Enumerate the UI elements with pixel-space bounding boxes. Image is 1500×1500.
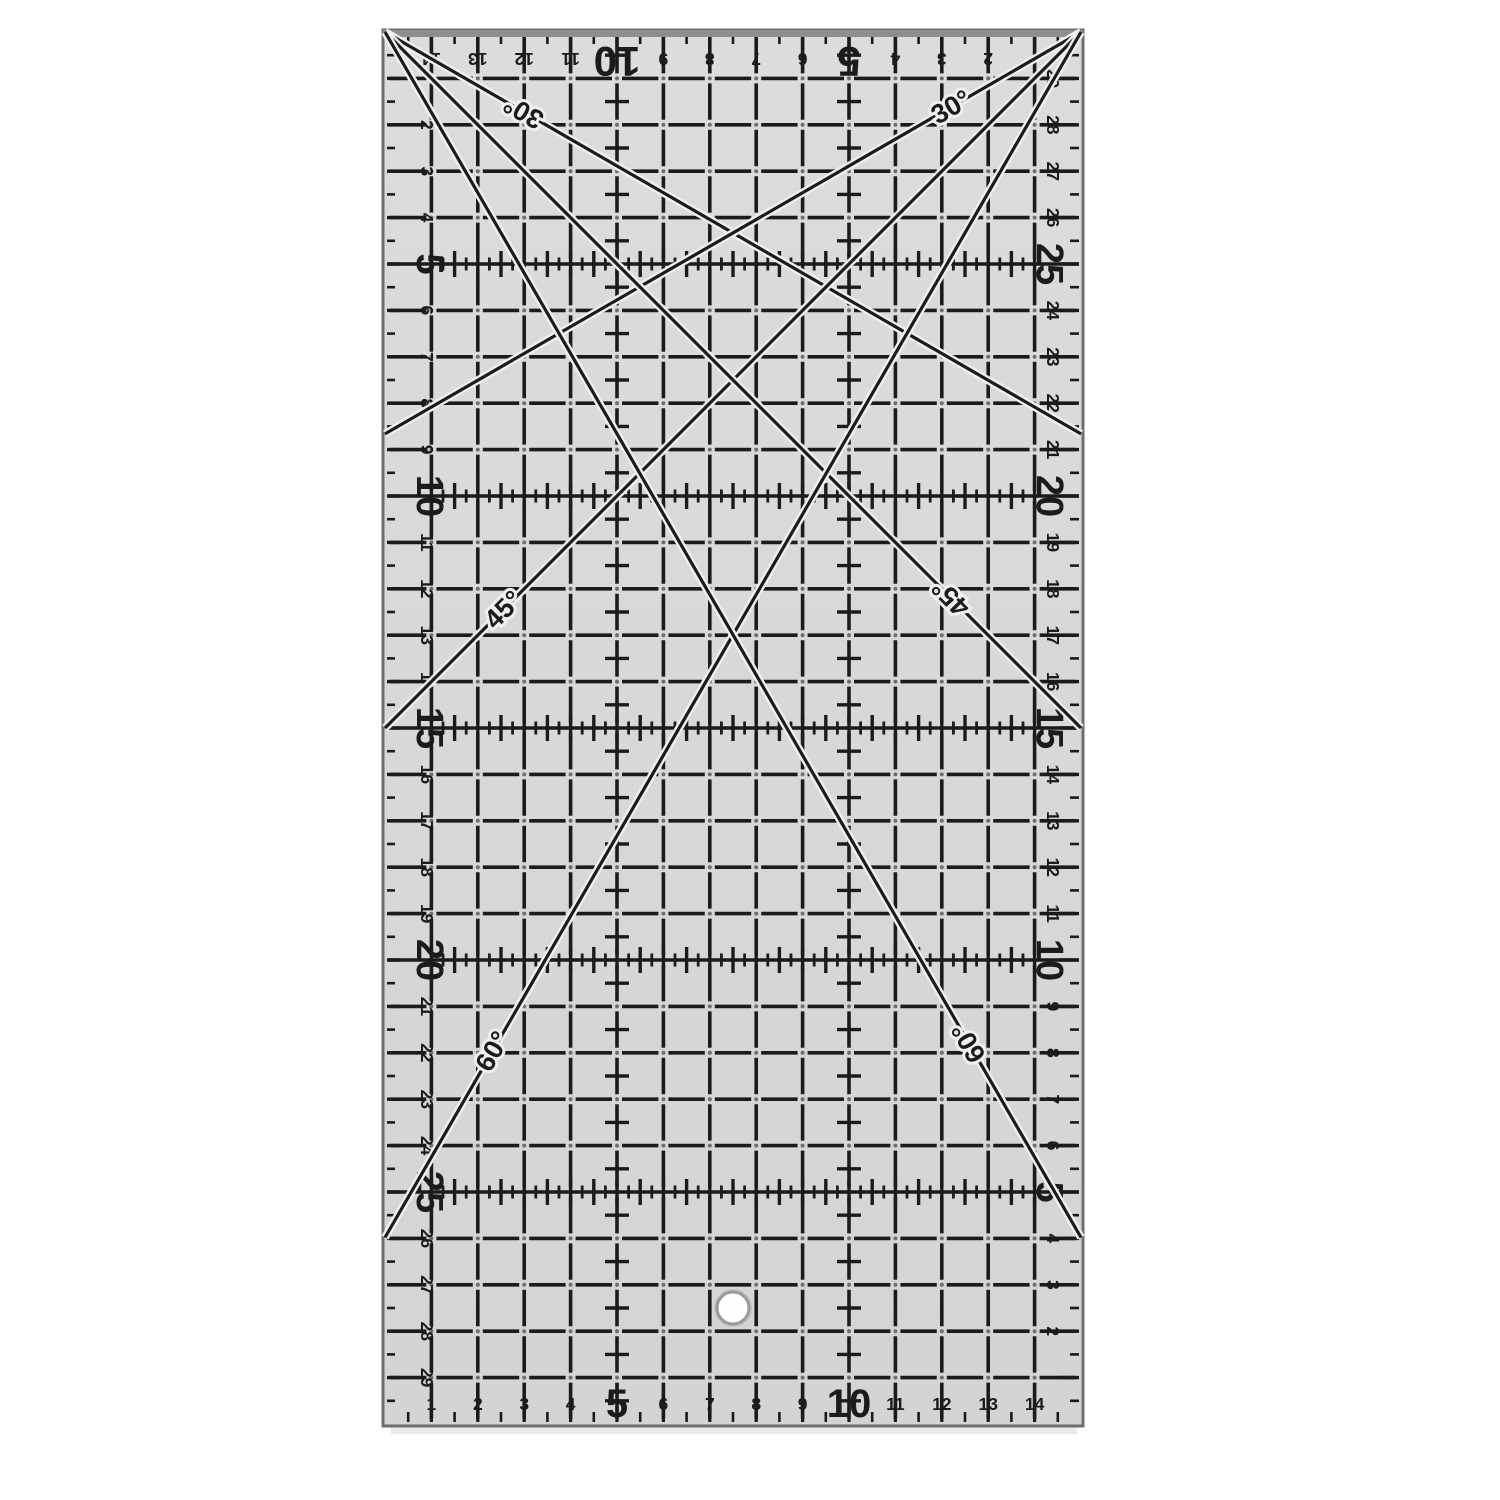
scale-number: 10 bbox=[827, 1382, 872, 1426]
scale-number: 14 bbox=[1025, 1394, 1045, 1414]
scale-number: 13 bbox=[417, 625, 437, 645]
scale-number: 5 bbox=[837, 38, 860, 85]
scale-number: 19 bbox=[417, 904, 437, 924]
scale-number: 23 bbox=[417, 1089, 437, 1109]
scale-number: 12 bbox=[417, 579, 437, 599]
scale-number: 11 bbox=[886, 1394, 905, 1414]
scale-number: 13 bbox=[468, 49, 488, 69]
scale-number: 4 bbox=[1043, 1234, 1063, 1244]
scale-number: 21 bbox=[1043, 440, 1063, 460]
scale-number: 1 bbox=[427, 1394, 437, 1414]
scale-number: 5 bbox=[408, 253, 450, 274]
scale-number: 2 bbox=[1043, 1326, 1063, 1336]
scale-number: 3 bbox=[417, 166, 437, 176]
scale-number: 18 bbox=[417, 857, 437, 877]
scale-number: 21 bbox=[417, 997, 437, 1017]
scale-number: 6 bbox=[1043, 1141, 1063, 1151]
scale-number: 22 bbox=[417, 1043, 437, 1063]
scale-number: 13 bbox=[1043, 811, 1063, 831]
scale-number: 20 bbox=[1028, 475, 1070, 517]
scale-number: 20 bbox=[408, 939, 450, 981]
scale-number: 12 bbox=[514, 49, 534, 69]
scale-number: 17 bbox=[417, 811, 437, 830]
scale-number: 5 bbox=[606, 1382, 628, 1426]
scale-number: 26 bbox=[1043, 208, 1063, 228]
scale-number: 7 bbox=[1043, 1094, 1063, 1104]
product-photo-canvas: 2345678910111213141234567891011121314234… bbox=[0, 0, 1500, 1500]
scale-number: 10 bbox=[594, 38, 641, 85]
scale-number: 24 bbox=[1043, 301, 1063, 321]
quilting-ruler: 2345678910111213141234567891011121314234… bbox=[0, 0, 1500, 1500]
scale-number: 9 bbox=[417, 445, 437, 455]
scale-number: 12 bbox=[932, 1394, 952, 1414]
ruler-top-edge bbox=[383, 30, 1083, 37]
scale-number: 7 bbox=[705, 1394, 715, 1414]
scale-number: 23 bbox=[1043, 347, 1063, 367]
scale-number: 9 bbox=[798, 1394, 808, 1414]
scale-number: 13 bbox=[978, 1394, 998, 1414]
scale-number: 19 bbox=[1043, 533, 1063, 553]
scale-number: 8 bbox=[1043, 1048, 1063, 1058]
scale-number: 28 bbox=[1043, 115, 1063, 135]
scale-number: 27 bbox=[417, 1275, 437, 1294]
scale-number: 8 bbox=[705, 49, 715, 69]
scale-number: 27 bbox=[1043, 161, 1063, 180]
scale-number: 9 bbox=[1043, 1002, 1063, 1012]
scale-number: 10 bbox=[1028, 939, 1070, 981]
scale-number: 3 bbox=[1043, 1280, 1063, 1290]
scale-number: 12 bbox=[1043, 857, 1063, 877]
scale-number: 26 bbox=[417, 1229, 437, 1249]
scale-number: 16 bbox=[417, 765, 437, 785]
scale-number: 17 bbox=[1043, 625, 1063, 644]
scale-number: 18 bbox=[1043, 579, 1063, 599]
scale-number: 11 bbox=[417, 533, 437, 552]
scale-number: 4 bbox=[417, 213, 437, 223]
scale-number: 7 bbox=[751, 49, 761, 69]
scale-number: 2 bbox=[983, 49, 993, 69]
scale-number: 8 bbox=[751, 1394, 761, 1414]
scale-number: 2 bbox=[473, 1394, 483, 1414]
scale-number: 15 bbox=[408, 707, 450, 749]
scale-number: 11 bbox=[1043, 904, 1063, 923]
scale-number: 7 bbox=[417, 352, 437, 362]
scale-number: 25 bbox=[1028, 243, 1070, 285]
scale-number: 6 bbox=[797, 49, 807, 69]
scale-number: 29 bbox=[417, 1368, 437, 1388]
scale-number: 10 bbox=[408, 475, 450, 517]
scale-number: 28 bbox=[417, 1321, 437, 1341]
scale-number: 6 bbox=[417, 306, 437, 316]
scale-number: 3 bbox=[937, 49, 947, 69]
scale-number: 4 bbox=[890, 49, 900, 69]
ruler-hole bbox=[715, 1290, 751, 1326]
scale-number: 9 bbox=[658, 49, 668, 69]
scale-number: 6 bbox=[659, 1394, 669, 1414]
scale-number: 4 bbox=[566, 1394, 576, 1414]
scale-number: 11 bbox=[561, 49, 580, 69]
scale-number: 14 bbox=[1043, 765, 1063, 785]
scale-number: 3 bbox=[519, 1394, 529, 1414]
